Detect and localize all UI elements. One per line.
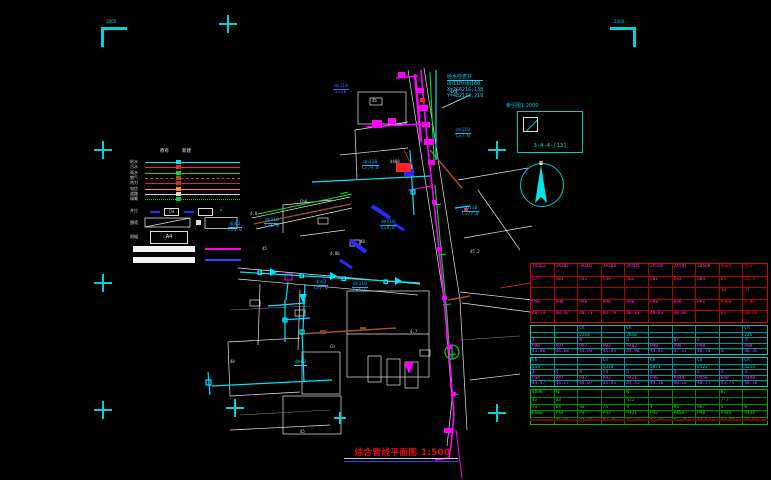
table-row: 45D35227-3 [531,397,767,404]
registration-cross-icon [334,412,346,424]
table-cell [531,287,555,299]
cable-dash-icon [184,211,194,213]
table-cell: 48.82 [649,310,673,322]
table-cell: 44.43 [602,380,626,386]
table-cell: 64 [555,404,579,411]
map-annotation: Ch8 [300,200,307,204]
map-annotation: 4.8 [250,212,257,216]
legend-magenta-line-icon [205,248,241,250]
table-cell: 584 [696,276,720,288]
legend-symbol-box [198,208,213,216]
legend-line-marker-icon [176,181,181,185]
table-cell: 74 [531,404,555,411]
table-cell: JA5Q7 [673,264,697,276]
north-needle-icon [519,161,565,207]
table-cell [578,390,602,397]
table-cell [696,397,720,404]
table-cell: 44.41 [649,348,673,354]
table-cell: 21 [743,287,767,299]
map-annotation: 48 [360,240,365,244]
registration-cross-icon [488,141,506,159]
table-cell: P98 [696,410,720,417]
table-cell: JA5Q2 [555,264,579,276]
map-annotation: 4×4 [450,90,457,94]
table-cell: 48.73 [578,310,602,322]
table-cell [673,390,697,397]
table-cell: P91 [696,299,720,311]
table-cell: P98 [625,299,649,311]
table-section: ChChChChCh559531058718522521344454444444… [530,357,768,387]
registration-cross-icon [94,401,112,419]
table-cell: 74 [602,404,626,411]
table-cell: P51 [743,264,767,276]
legend-line-swatch [145,173,240,174]
pipe-label: dn110L=7.0 [455,128,471,139]
legend-row: 道路 [128,192,246,197]
legend-wall-label: 围墙 [130,220,138,226]
legend-line-swatch [145,167,240,168]
table-cell: 48.78 [743,380,767,386]
legend-row: 热力 [128,181,246,186]
legend-symbol-box: CH [164,208,179,216]
map-annotation: 4.86 [330,252,340,256]
legend-line-swatch [145,189,240,190]
table-cell: JA5Q5 [625,264,649,276]
table-cell: P98 [531,299,555,311]
legend-col-header: 新建 [182,148,191,154]
table-cell: P421 [625,410,649,417]
table-cell: 987 [696,404,720,411]
table-cell: 4.98 [743,299,767,311]
corner-mark-icon [101,27,104,47]
table-cell: W [743,404,767,411]
map-annotation: Ch [330,345,335,349]
table-cell: P98 [578,299,602,311]
map-annotation: 45 [262,247,267,251]
table-cell: JA5Q1 [531,264,555,276]
cable-dash-icon [150,211,160,213]
pipe-label: dn63 [294,360,307,366]
corner-mark-icon [633,27,636,47]
table-cell: 43.74 [720,380,744,386]
legend-line-swatch [145,199,240,200]
drawing-title: 综合管线平面图 1:500 [340,446,465,458]
table-cell [649,397,673,404]
pipe-label: dn63L=7.0 [314,280,328,291]
hatch-square-icon [523,117,538,132]
table-cell: P98 [649,299,673,311]
table-row: 3821 [531,287,767,299]
pipe-label: dn110L=79.0 [362,160,379,171]
table-cell: 48.74 [531,310,555,322]
registration-cross-icon [219,15,237,33]
table-cell: P42 [602,410,626,417]
legend-symbol-glyph: £ [220,208,223,213]
table-cell [743,390,767,397]
legend-row: 污水 [128,165,246,170]
road-bar-icon [133,246,195,252]
table-cell: A488 [720,299,744,311]
table-cell: 44.94 [602,348,626,354]
coordinate-title: 给水检查井 [447,74,483,81]
legend-row: 绿篱 [128,197,246,202]
table-cell: P502 [720,264,744,276]
table-cell: 25.1 [743,276,767,288]
table-cell: W7 [720,390,744,397]
legend-line-marker-icon [176,160,181,164]
table-cell: P98 [673,299,697,311]
legend-line-marker-icon [176,197,181,201]
legend-row: 给水 [128,160,246,165]
table-cell: 69 [720,310,744,322]
table-row: 41.0644.6844.8444.9444.9844.4147.1148.79… [531,348,767,354]
table-cell: P98 [602,299,626,311]
table-cell: 583 [555,276,579,288]
pipe-data-table: JA5Q1JA5Q2JA5Q3JA5Q4JA5Q5JA5Q6JA5Q7JA5Q8… [530,263,768,427]
table-row: 5775835425495615815835846425.1 [531,276,767,288]
map-annotation: 45.2 [470,250,480,254]
table-row: 48.7448.9348.7348.7948.8148.8248.846948.… [531,310,767,322]
table-cell: 47.11 [673,348,697,354]
table-cell: 549 [602,276,626,288]
table-cell [696,390,720,397]
pipe-label: dn110L=5.0 [264,218,280,229]
table-cell [673,397,697,404]
table-cell: P98 [555,299,579,311]
table-cell [602,397,626,404]
table-cell: m [720,348,744,354]
legend-line-swatch [145,178,240,179]
table-cell: 44.68 [555,348,579,354]
legend-line-swatch [145,194,240,195]
legend-row: 燃气 [128,176,246,181]
table-cell: 48.93 [555,310,579,322]
table-cell: JA5Q6 [649,264,673,276]
corner-mark-icon [101,27,127,30]
registration-cross-icon [94,141,112,159]
table-cell: 64 [720,276,744,288]
table-cell: 4898 [531,390,555,397]
corner-mark-label: 2000 [614,20,624,24]
table-cell [602,287,626,299]
registration-cross-icon [488,404,506,422]
pipe-label: dn63L=3.0 [228,222,242,233]
table-cell [743,397,767,404]
table-row: P988P44P47P42P421P42P458P98P484P444 [531,410,767,417]
table-cell: JA5Q4 [602,264,626,276]
table-cell: 522 [625,397,649,404]
index-box-caption: 索引图1:2000 [506,102,539,109]
road-bar-icon [133,257,195,263]
table-cell: 48.10 [673,380,697,386]
table-cell: P42 [649,410,673,417]
table-cell: 44.98 [625,348,649,354]
table-cell: 48.79 [696,348,720,354]
legend-symbol-label: 井位 [130,208,138,214]
table-underline [530,419,768,421]
table-cell [578,287,602,299]
table-cell: 44.43 [625,380,649,386]
table-cell: JA5Q8 [696,264,720,276]
table-cell: P44 [555,410,579,417]
table-cell: 48.66 [743,310,767,322]
legend-row-label: 绿篱 [130,196,138,202]
table-cell: 48.84 [673,310,697,322]
table-cell: W [625,390,649,397]
table-cell: P988 [531,410,555,417]
table-cell: P47 [578,410,602,417]
table-cell: 7-3 [720,397,744,404]
table-cell: 44.10 [649,380,673,386]
table-section: JA5Q1JA5Q2JA5Q3JA5Q4JA5Q5JA5Q6JA5Q7JA5Q8… [530,263,768,323]
index-box-code: 3-4-4-[13] [518,143,582,149]
legend: 原有 新建 给水污水雨水燃气热力电信道路绿篱 井位 CH £ 围墙 图幅 [128,146,248,276]
table-cell: 48 [578,404,602,411]
table-cell [625,287,649,299]
table-row: 44.4744.2744.0744.4344.4344.1048.1048.71… [531,380,767,386]
cad-drawing-canvas: 2000 2000 原有 新建 给水污水雨水燃气热力电信道路绿篱 井位 CH £… [0,0,771,480]
legend-blue-line-icon [205,259,241,261]
table-cell [602,390,626,397]
map-annotation: 4.7 [410,330,417,334]
frame-box: A4 [150,231,188,244]
coordinate-annotation: 给水检查井 dn110×dn160 X=266216.138 Y=482178.… [447,74,483,99]
map-annotation: d400 [390,160,400,164]
table-cell: 48.81 [625,310,649,322]
table-cell: 48.71 [696,380,720,386]
table-cell: 41.06 [531,348,555,354]
title-underline-blue [344,461,458,462]
table-section: ChChCh22542650225444W74大P98P97P97P92P402… [530,325,768,355]
table-cell: 90 [673,404,697,411]
table-cell: 583 [673,276,697,288]
legend-col-header: 原有 [160,148,169,154]
table-cell: 44.27 [555,380,579,386]
table-cell: 45 [531,397,555,404]
table-cell: 38 [720,287,744,299]
table-cell: D3 [555,397,579,404]
table-cell: 542 [578,276,602,288]
table-cell: P458 [673,410,697,417]
table-cell: P484 [720,410,744,417]
pipe-label: dn110L=5.0 [352,282,368,293]
legend-line-swatch [145,183,240,184]
pipe-label: dn110L=20 [333,84,349,95]
legend-line-marker-icon [176,192,181,196]
table-cell: 48.35 [743,348,767,354]
map-annotation: 4b [372,99,377,103]
map-annotation: 45 [300,430,305,434]
table-cell: JA5Q3 [578,264,602,276]
table-cell [649,287,673,299]
registration-cross-icon [226,399,244,417]
legend-frame-label: 图幅 [130,234,138,240]
legend-row: 雨水 [128,171,246,176]
index-box: 3-4-4-[13] [517,111,583,153]
table-cell [578,397,602,404]
table-cell: P444 [743,410,767,417]
table-row: 7464487444909874W [531,404,767,411]
table-cell: 4 [649,404,673,411]
table-cell: 44.07 [578,380,602,386]
table-cell: 4 [625,404,649,411]
table-cell: 排 [555,390,579,397]
table-cell: 577 [531,276,555,288]
registration-cross-icon [94,274,112,292]
pipe-label: dn110L=77.8 [462,206,479,217]
table-cell: 561 [625,276,649,288]
table-cell [649,390,673,397]
north-arrow [519,161,565,207]
map-annotation: 48 [230,360,235,364]
table-cell [696,287,720,299]
table-cell: 4 [720,404,744,411]
title-underline [344,458,458,459]
table-cell: 44.47 [531,380,555,386]
legend-line-marker-icon [176,165,181,169]
table-cell [555,287,579,299]
table-cell [673,287,697,299]
table-cell: 48.79 [602,310,626,322]
table-cell: 44.84 [578,348,602,354]
legend-row: 电信 [128,187,246,192]
table-row: JA5Q1JA5Q2JA5Q3JA5Q4JA5Q5JA5Q6JA5Q7JA5Q8… [531,264,767,276]
legend-line-marker-icon [176,171,181,175]
table-row: P98P98P98P98P98P98P98P91A4884.98 [531,299,767,311]
table-cell: 581 [649,276,673,288]
corner-mark-label: 2000 [106,20,116,24]
pipe-label: dn110L=4.0 [380,220,396,231]
frame-code: A4 [166,234,173,240]
legend-line-marker-icon [176,187,181,191]
legend-line-marker-icon [176,176,181,180]
legend-line-swatch [145,162,240,163]
table-cell [696,310,720,322]
table-row: 4898排WW7 [531,390,767,397]
